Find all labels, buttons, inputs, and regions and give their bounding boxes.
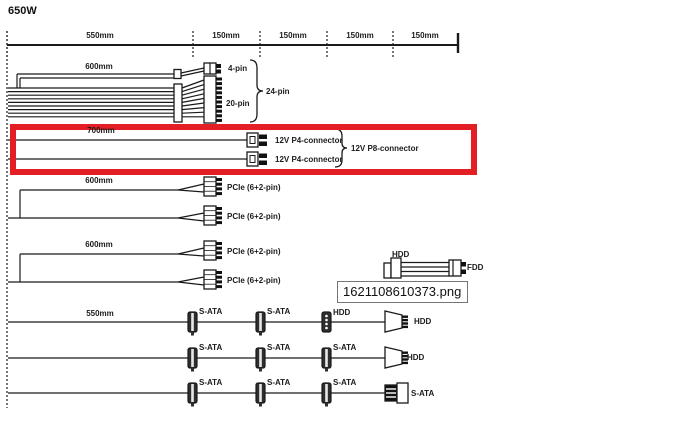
- sata-connector: [322, 383, 331, 407]
- 4pin-connector: [204, 63, 221, 74]
- hdd-end-connector: [385, 311, 408, 332]
- connector-label: HDD: [392, 250, 409, 259]
- sata-connector: [256, 312, 265, 336]
- cable-tie: [174, 84, 182, 122]
- connector-label: FDD: [467, 263, 483, 272]
- ruler-segment-label: 150mm: [263, 31, 323, 40]
- pcie-connector: [204, 177, 222, 196]
- sata-connector: [188, 348, 197, 372]
- pcie-connector: [204, 206, 222, 225]
- connector-label: PCIe (6+2-pin): [227, 212, 281, 221]
- pcie-connector: [204, 241, 222, 260]
- connector-label: PCIe (6+2-pin): [227, 247, 281, 256]
- ruler-segment-label: 150mm: [196, 31, 256, 40]
- connector-label: S-ATA: [199, 343, 222, 352]
- connector-label: S-ATA: [199, 307, 222, 316]
- sata-connector: [256, 383, 265, 407]
- atx-24pin-cable: [8, 60, 263, 123]
- psu-cable-diagram: 650W 550mm 150mm 150mm 150mm 150mm 600mm…: [0, 0, 689, 422]
- hdd-passthrough-connector: [384, 258, 401, 278]
- hdd-end-connector: [385, 347, 408, 368]
- sata-end-connector: [385, 383, 408, 403]
- connector-label: 20-pin: [226, 99, 250, 108]
- connector-label: S-ATA: [411, 389, 434, 398]
- 24pin-brace: [250, 60, 263, 122]
- cable-length-label: 550mm: [70, 309, 130, 318]
- connector-label: S-ATA: [333, 343, 356, 352]
- pcie-connector: [204, 270, 222, 289]
- cable-length-label: 600mm: [69, 176, 129, 185]
- connector-label: S-ATA: [267, 307, 290, 316]
- connector-label: HDD: [407, 353, 424, 362]
- connector-label: PCIe (6+2-pin): [227, 183, 281, 192]
- hdd-fdd-adapter: [384, 258, 466, 278]
- filename-tooltip: 1621108610373.png: [337, 281, 468, 303]
- cable-length-label: 600mm: [69, 240, 129, 249]
- connector-label: S-ATA: [333, 378, 356, 387]
- connector-label: 24-pin: [266, 87, 290, 96]
- connector-label: S-ATA: [199, 378, 222, 387]
- cable-tie: [174, 70, 181, 79]
- cable-length-label: 600mm: [69, 62, 129, 71]
- connector-label: HDD: [414, 317, 431, 326]
- page-title: 650W: [8, 5, 37, 17]
- ruler-segment-label: 550mm: [70, 31, 130, 40]
- sata-connector: [256, 348, 265, 372]
- sata-connector: [188, 312, 197, 336]
- connector-label: PCIe (6+2-pin): [227, 276, 281, 285]
- cable-length-label: 700mm: [71, 126, 131, 135]
- hdd-inline-connector: [322, 312, 331, 332]
- sata-connector: [188, 383, 197, 407]
- fdd-connector: [449, 260, 466, 276]
- ruler-segment-label: 150mm: [395, 31, 455, 40]
- connector-label: S-ATA: [267, 343, 290, 352]
- sata-connector: [322, 348, 331, 372]
- connector-label: 12V P8-connector: [351, 144, 419, 153]
- connector-label: 12V P4-connector: [275, 155, 343, 164]
- connector-label: 12V P4-connector: [275, 136, 343, 145]
- ruler-segment-label: 150mm: [330, 31, 390, 40]
- 20pin-connector: [204, 76, 222, 123]
- connector-label: HDD: [333, 308, 350, 317]
- connector-label: S-ATA: [267, 378, 290, 387]
- connector-label: 4-pin: [228, 64, 247, 73]
